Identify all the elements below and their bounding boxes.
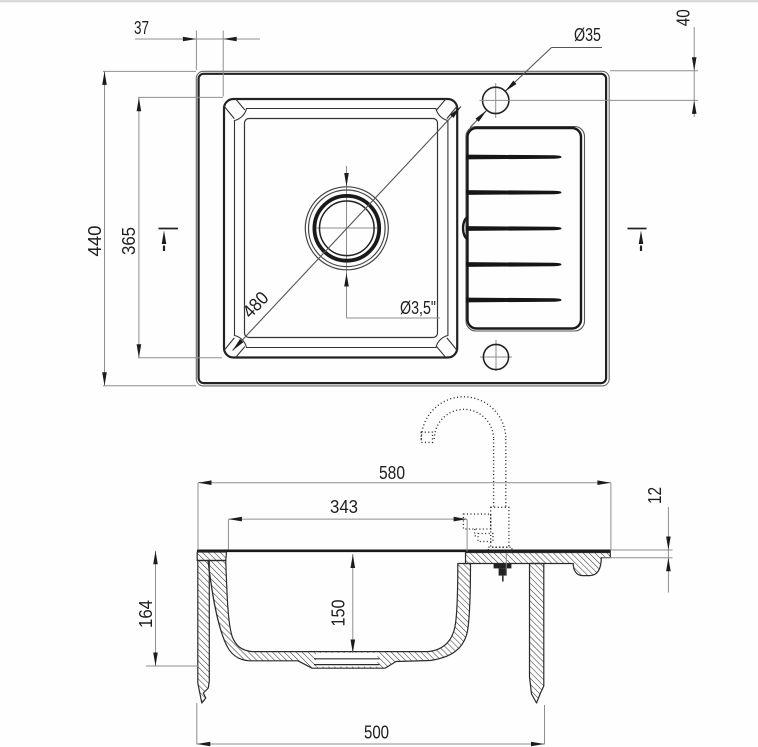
svg-text:Ø35: Ø35 xyxy=(574,24,601,45)
svg-text:580: 580 xyxy=(379,462,405,483)
svg-text:500: 500 xyxy=(364,722,389,743)
svg-text:440: 440 xyxy=(84,226,105,257)
svg-text:40: 40 xyxy=(673,9,694,26)
svg-text:Ø3,5": Ø3,5" xyxy=(400,297,436,318)
svg-text:164: 164 xyxy=(135,600,156,628)
svg-text:37: 37 xyxy=(134,17,149,38)
svg-text:12: 12 xyxy=(644,487,665,504)
svg-text:365: 365 xyxy=(118,227,139,255)
svg-text:480: 480 xyxy=(238,287,273,322)
svg-text:343: 343 xyxy=(330,496,358,517)
svg-text:150: 150 xyxy=(328,600,349,627)
